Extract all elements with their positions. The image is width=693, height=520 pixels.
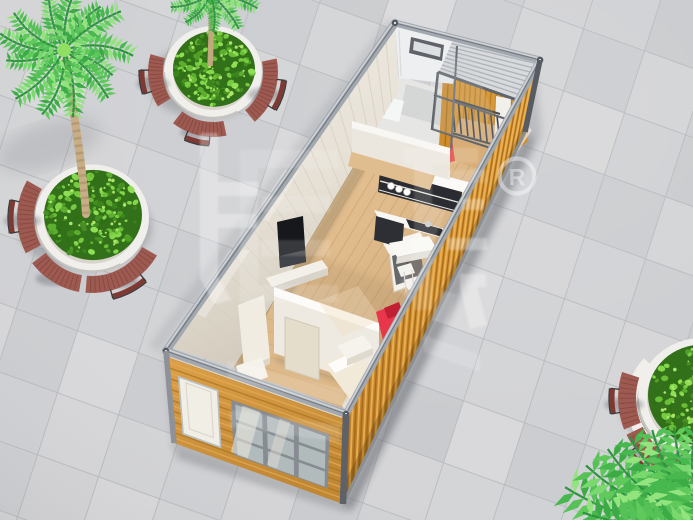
svg-text:R: R xyxy=(509,164,526,190)
